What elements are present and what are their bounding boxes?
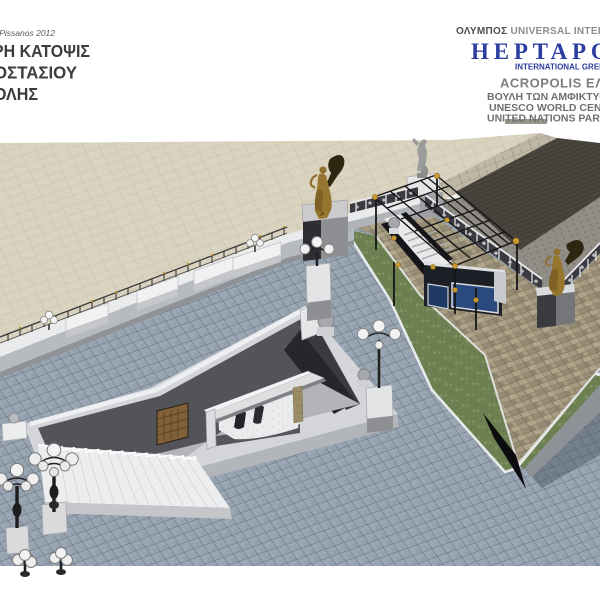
svg-text:ΟΛΗΣ: ΟΛΗΣ (0, 84, 38, 104)
svg-text:INTERNATIONAL GREEN CITY: INTERNATIONAL GREEN CITY (515, 63, 600, 72)
svg-text:l Pissanos 2012: l Pissanos 2012 (0, 28, 55, 38)
svg-text:ΟΛΥΜΠΟΣ UNIVERSAL INTELLECTUAL: ΟΛΥΜΠΟΣ UNIVERSAL INTELLECTUAL PROPERTY (456, 26, 600, 37)
svg-text:UNITED NATIONS PARK: UNITED NATIONS PARK (487, 113, 600, 125)
svg-text:ΟΣΤΑΣΙΟΥ: ΟΣΤΑΣΙΟΥ (0, 63, 77, 83)
svg-text:ACROPOLIS ΕΛ: ACROPOLIS ΕΛ (500, 76, 600, 91)
svg-text:ΡΗ ΚΑΤΟΨΙΣ: ΡΗ ΚΑΤΟΨΙΣ (0, 41, 90, 61)
svg-text:ΗΕΡΤΑΡΟΣ: ΗΕΡΤΑΡΟΣ (471, 39, 600, 64)
